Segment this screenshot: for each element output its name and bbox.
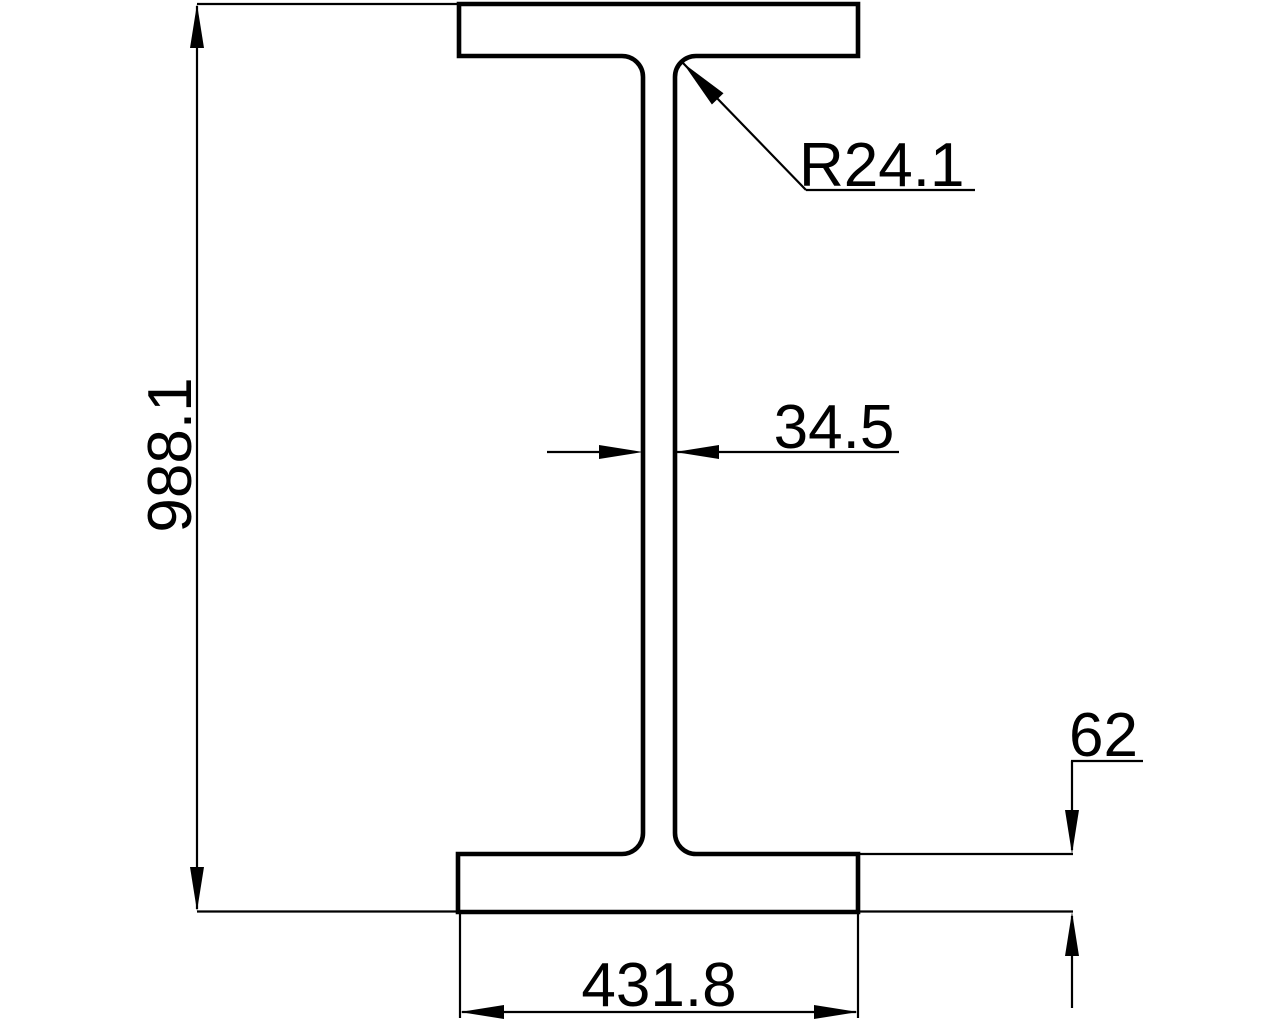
i-beam-section-drawing: 988.1 34.5 R24.1 62 bbox=[0, 0, 1280, 1024]
height-arrow-up-icon bbox=[190, 4, 204, 48]
height-arrow-down-icon bbox=[190, 867, 204, 911]
width-arrow-left-icon bbox=[460, 1005, 504, 1019]
web-arrow-right-icon bbox=[599, 445, 643, 459]
web-thickness-label: 34.5 bbox=[774, 393, 895, 462]
flange-thickness-label: 62 bbox=[1069, 701, 1138, 770]
flange-thickness-arrow-up-icon bbox=[1065, 912, 1079, 956]
technical-drawing-canvas: 988.1 34.5 R24.1 62 bbox=[0, 0, 1280, 1024]
web-arrow-left-icon bbox=[675, 445, 719, 459]
flange-width-label: 431.8 bbox=[581, 951, 736, 1020]
fillet-radius-dimension: R24.1 bbox=[683, 63, 975, 200]
flange-thickness-dimension: 62 bbox=[858, 701, 1143, 1008]
flange-thickness-arrow-down-icon bbox=[1065, 810, 1079, 854]
web-thickness-dimension: 34.5 bbox=[547, 393, 899, 462]
width-arrow-right-icon bbox=[814, 1005, 858, 1019]
height-dimension: 988.1 bbox=[136, 4, 459, 912]
height-dimension-label: 988.1 bbox=[136, 377, 205, 532]
flange-width-dimension: 431.8 bbox=[460, 912, 858, 1020]
radius-arrow-icon bbox=[683, 63, 724, 105]
fillet-radius-label: R24.1 bbox=[799, 131, 964, 200]
